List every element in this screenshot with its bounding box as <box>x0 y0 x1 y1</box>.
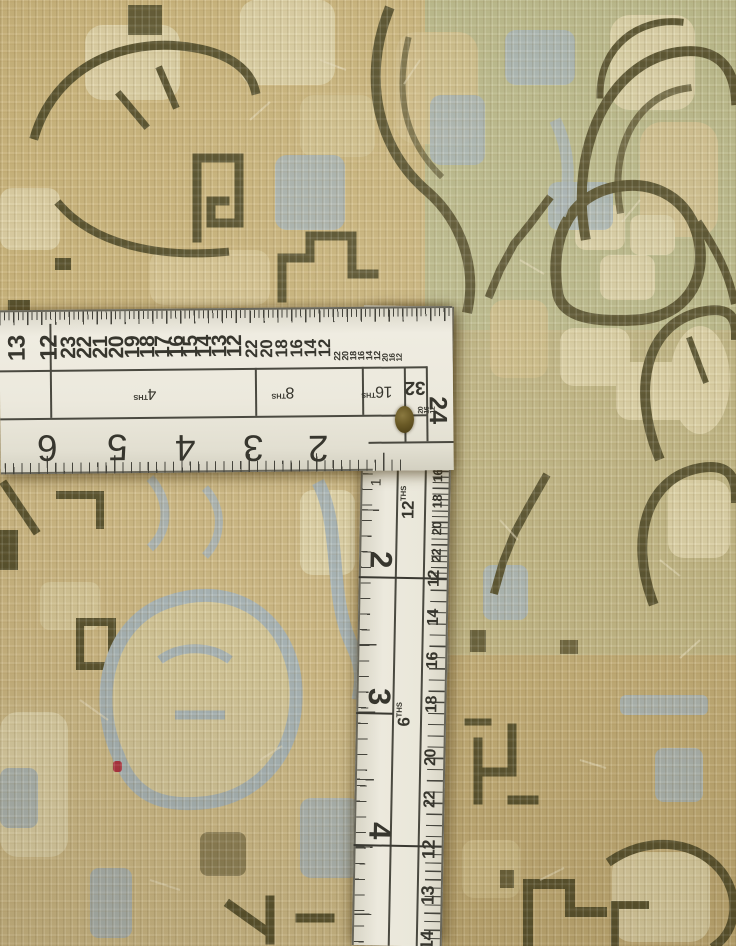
ruler-number: 12 <box>316 339 333 357</box>
ruler-number: 14 <box>426 609 442 626</box>
rug-and-ruler-photo: 12THS6THS 234 12162012141618202212141618… <box>0 0 736 946</box>
band-bottom-line <box>0 414 427 420</box>
ruler-number: 4 <box>175 429 195 466</box>
ruler-rivet <box>395 406 414 433</box>
ruler-number: 12 <box>419 840 437 859</box>
ruler-number: 3 <box>364 688 395 705</box>
ruler-number: 22 <box>422 791 438 808</box>
ruler-number: 5 <box>107 429 127 466</box>
ruler-number: 20 <box>423 749 439 766</box>
ruler-number: 2 <box>308 430 328 467</box>
ruler-number: 4THS <box>148 385 157 401</box>
framing-square-horizontal-arm: 1312232221201918171615141312222018161412… <box>0 306 454 474</box>
ruler-number: 16 <box>425 652 441 669</box>
ruler-number: 16 <box>431 469 444 483</box>
ruler-number: 13 <box>419 886 437 905</box>
ruler-number: 18 <box>424 696 440 713</box>
ruler-number: 12THS <box>399 501 416 519</box>
ruler-number: 6 <box>37 429 57 466</box>
rug-flower-blue-ring <box>106 595 296 803</box>
ruler-number: 2 <box>365 551 396 568</box>
ruler-number: 12 <box>396 354 404 362</box>
ruler-number: 20 <box>430 522 443 536</box>
corner-box-bottom-line <box>369 441 454 443</box>
label-32nds: 32 <box>404 378 425 397</box>
ruler-number: 22 <box>430 549 443 563</box>
ruler-number: 8THS <box>286 384 295 400</box>
divider-2 <box>255 368 257 416</box>
inch-1-label: 1 <box>369 478 383 486</box>
ruler-number: 13 <box>5 335 29 361</box>
red-thread <box>113 761 122 772</box>
ruler-number: 4 <box>364 822 395 839</box>
ruler-number: 3 <box>243 429 263 466</box>
ruler-number: 12 <box>427 570 443 587</box>
ruler-number: 6THS <box>395 717 412 726</box>
label-24: 24 <box>425 396 450 424</box>
ruler-number: 18 <box>431 495 444 509</box>
ruler-number: 16THS <box>376 383 393 399</box>
ruler-number: 14 <box>418 931 436 946</box>
